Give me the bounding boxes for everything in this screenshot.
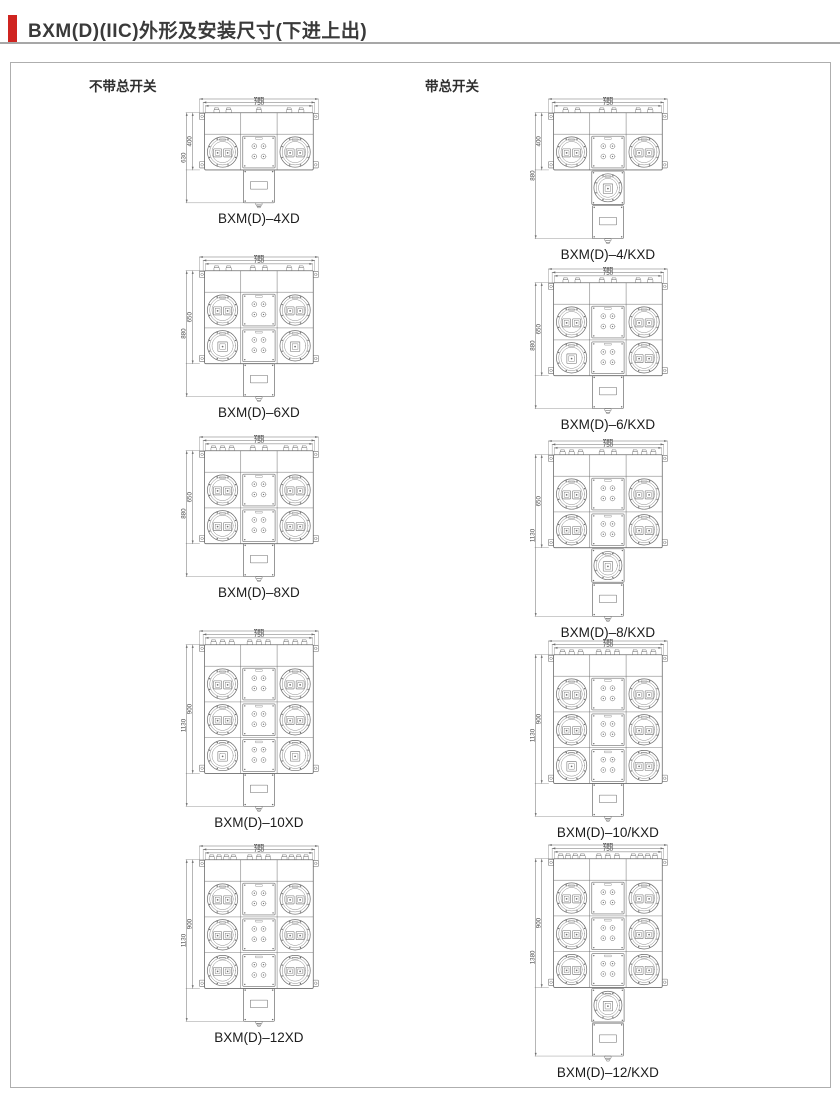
model-label: BXM(D)–4/KXD — [561, 247, 656, 262]
svg-text:1130: 1130 — [181, 718, 187, 732]
svg-text:900: 900 — [535, 713, 542, 724]
model-label: BXM(D)–12XD — [214, 1030, 303, 1045]
column-header-with-main-switch: 带总开关 — [425, 75, 479, 95]
technical-drawing-svg: 830780750880650 — [181, 435, 337, 584]
svg-text:750: 750 — [603, 100, 614, 107]
dimension-drawing-block: 830780750880650BXM(D)–6XD — [181, 255, 337, 420]
model-label: BXM(D)–8XD — [218, 585, 300, 600]
svg-text:650: 650 — [186, 311, 193, 322]
svg-text:750: 750 — [603, 846, 614, 853]
model-label: BXM(D)–8/KXD — [561, 625, 656, 640]
dimension-drawing-block: 8307807501130900BXM(D)–10/KXD — [530, 639, 686, 840]
svg-text:750: 750 — [603, 442, 614, 449]
model-label: BXM(D)–6/KXD — [561, 417, 656, 432]
red-accent-bar — [8, 15, 17, 43]
svg-text:880: 880 — [530, 340, 536, 351]
svg-text:880: 880 — [181, 328, 187, 339]
page-header: BXM(D)(IIC)外形及安装尺寸(下进上出) — [8, 15, 367, 43]
svg-text:1380: 1380 — [530, 950, 536, 964]
svg-text:750: 750 — [254, 100, 265, 107]
svg-text:900: 900 — [186, 918, 193, 929]
technical-drawing-svg: 8307807501130900 — [181, 844, 337, 1029]
svg-text:750: 750 — [254, 438, 265, 445]
technical-drawing-svg: 8307807501380900 — [530, 843, 686, 1064]
dimension-drawing-block: 830780750880400BXM(D)–4/KXD — [530, 97, 686, 262]
svg-text:650: 650 — [186, 491, 193, 502]
model-label: BXM(D)–12/KXD — [557, 1065, 659, 1080]
svg-text:900: 900 — [186, 703, 193, 714]
model-label: BXM(D)–10/KXD — [557, 825, 659, 840]
svg-text:750: 750 — [254, 847, 265, 854]
svg-text:1130: 1130 — [530, 528, 536, 542]
model-label: BXM(D)–6XD — [218, 405, 300, 420]
svg-text:1130: 1130 — [530, 728, 536, 742]
svg-text:880: 880 — [181, 508, 187, 519]
dimension-drawing-block: 8307807501130650BXM(D)–8/KXD — [530, 439, 686, 640]
model-label: BXM(D)–10XD — [214, 815, 303, 830]
svg-text:750: 750 — [603, 642, 614, 649]
svg-text:750: 750 — [603, 270, 614, 277]
dimension-drawing-block: 830780750880650BXM(D)–8XD — [181, 435, 337, 600]
technical-drawing-svg: 830780750880400 — [530, 97, 686, 246]
svg-text:900: 900 — [535, 917, 542, 928]
content-panel: 不带总开关 带总开关 830780750630400BXM(D)–4XD8307… — [10, 62, 831, 1088]
svg-text:750: 750 — [254, 632, 265, 639]
svg-text:650: 650 — [535, 495, 542, 506]
technical-drawing-svg: 8307807501130650 — [530, 439, 686, 624]
technical-drawing-svg: 8307807501130900 — [181, 629, 337, 814]
svg-text:1130: 1130 — [181, 933, 187, 947]
dimension-drawing-block: 8307807501380900BXM(D)–12/KXD — [530, 843, 686, 1080]
technical-drawing-svg: 8307807501130900 — [530, 639, 686, 824]
technical-drawing-svg: 830780750880650 — [181, 255, 337, 404]
svg-text:880: 880 — [530, 170, 536, 181]
svg-text:400: 400 — [186, 136, 193, 147]
technical-drawing-svg: 830780750880650 — [530, 267, 686, 416]
dimension-drawing-block: 830780750630400BXM(D)–4XD — [181, 97, 337, 226]
dimension-drawing-block: 8307807501130900BXM(D)–12XD — [181, 844, 337, 1045]
dimension-drawing-block: 8307807501130900BXM(D)–10XD — [181, 629, 337, 830]
svg-text:400: 400 — [535, 136, 542, 147]
dimension-drawing-block: 830780750880650BXM(D)–6/KXD — [530, 267, 686, 432]
model-label: BXM(D)–4XD — [218, 211, 300, 226]
page-title: BXM(D)(IIC)外形及安装尺寸(下进上出) — [28, 16, 367, 43]
header-divider — [0, 42, 840, 44]
column-header-no-main-switch: 不带总开关 — [89, 75, 157, 95]
svg-text:630: 630 — [181, 152, 187, 163]
technical-drawing-svg: 830780750630400 — [181, 97, 337, 210]
svg-text:750: 750 — [254, 258, 265, 265]
svg-text:650: 650 — [535, 323, 542, 334]
